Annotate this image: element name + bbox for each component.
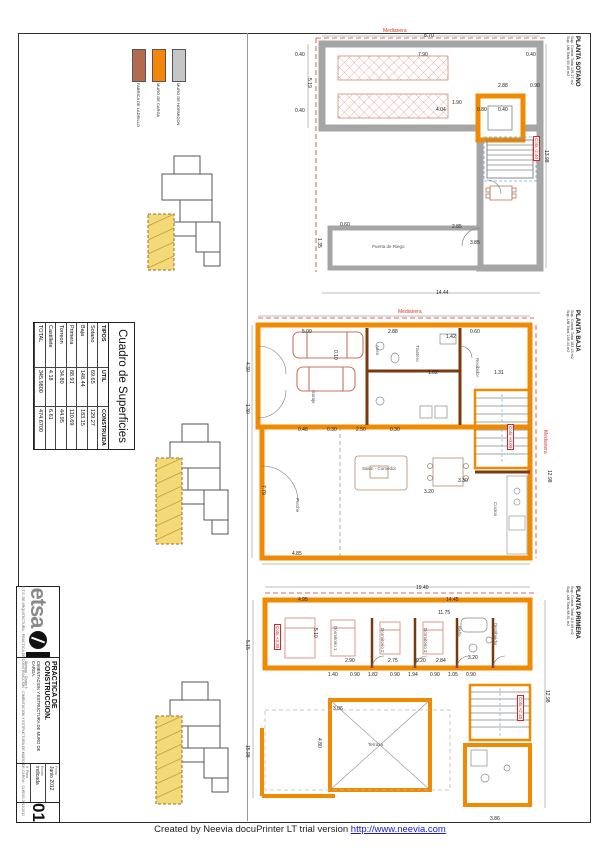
- planta-sotano-drawing: [250, 28, 562, 303]
- room-label: Salon - Comedor: [362, 466, 396, 471]
- surfaces-table-row: Castillete 4.18 6.61: [45, 323, 56, 449]
- cota-label: Cota +2.45: [517, 695, 524, 721]
- room-label: Garaje: [311, 390, 316, 404]
- field-fecha: Fecha Junio 2012: [45, 764, 59, 802]
- surfaces-table-title: Cuadro de Superficies: [108, 323, 134, 449]
- escala-label: Escala: [40, 766, 44, 800]
- dimension-label: 5.15: [244, 640, 250, 650]
- dimension-label: 0.40: [526, 52, 536, 58]
- legend-item-loadwall: MURO DE CARGA: [152, 49, 164, 82]
- etsa-logo-circle-icon: [29, 631, 47, 649]
- field-escala: Escala indicada: [30, 764, 44, 802]
- site-keyplan-3: [148, 678, 243, 820]
- dimension-label: 0.20: [416, 658, 426, 664]
- dimension-label: 12.98: [546, 470, 552, 483]
- dimension-label: 19.40: [416, 585, 429, 591]
- dimension-label: 1.31: [494, 370, 504, 376]
- site-keyplan-1: [140, 152, 235, 287]
- dimension-label: 0.40: [498, 107, 508, 113]
- dimension-label: 0.90: [350, 672, 360, 678]
- legend-item-brick: FABRICA DE LADRILLO: [132, 49, 144, 82]
- plan-title-sotano: PLANTA SOTANO Sup. Constr. Total 129.27 …: [566, 36, 580, 124]
- cell-util: 34.80: [56, 368, 67, 407]
- cota-label: Cota +0.00: [507, 424, 514, 450]
- dimension-label: 2.84: [436, 658, 446, 664]
- dimension-label: 4.30: [244, 362, 250, 372]
- dimension-label: 0.30: [327, 427, 337, 433]
- dimension-label: 3.85: [470, 240, 480, 246]
- etsa-logo-bar-icon: [26, 652, 50, 657]
- cell-construida: 6.61: [45, 407, 56, 449]
- room-label: Trastero: [415, 345, 420, 362]
- room-label: Dormitorio 1: [333, 626, 338, 651]
- planta-baja-drawing: [245, 306, 575, 568]
- dimension-label: 0.48: [298, 427, 308, 433]
- site-keyplan-2: [148, 418, 243, 563]
- dimension-label: 4.80: [316, 738, 322, 748]
- dimension-label: 1.35: [316, 238, 322, 248]
- credits-strip: E.T.S. DE ARQUITECTURA · PRACTICA DE CON…: [18, 586, 28, 821]
- cell-construida: 183.15: [77, 407, 88, 449]
- dimension-label: 1.82: [368, 672, 378, 678]
- elevator-shaft: [478, 96, 523, 140]
- dimension-label: 3.20: [424, 489, 434, 495]
- cell-util: 345.9800: [35, 368, 46, 407]
- dimension-label: 7.90: [418, 52, 428, 58]
- cell-tipo: Baja: [77, 323, 88, 368]
- dimension-label: 2.50: [356, 427, 366, 433]
- escala-value: indicada: [34, 766, 40, 800]
- dimension-label: 5.10: [312, 628, 318, 638]
- dimension-label: 2.75: [388, 658, 398, 664]
- dimension-label: Medianera: [383, 28, 407, 34]
- dimension-label: 14.44: [436, 290, 449, 296]
- project-title: PRACTICA DE CONSTRUCCION.: [43, 661, 57, 760]
- dimension-label: 14.45: [446, 597, 459, 603]
- legend-item-concrete: MURO DE HORMIGON: [172, 49, 184, 82]
- col-tipos: TIPOS: [98, 323, 109, 368]
- cell-construida: 44.95: [56, 407, 67, 449]
- room-label: Cocina: [493, 502, 498, 516]
- dimension-label: 0.90: [530, 83, 540, 89]
- dimension-label: 0.40: [295, 52, 305, 58]
- etsa-logo-text: etsa: [25, 587, 51, 627]
- dimension-label: 1.30: [244, 404, 250, 414]
- baja-exterior-walls: [258, 325, 530, 558]
- room-label: Terraza: [368, 742, 383, 747]
- cell-util: 69.65: [87, 368, 98, 407]
- dimension-label: 4.85: [292, 551, 302, 557]
- legend-label-loadwall: MURO DE CARGA: [156, 83, 161, 117]
- dimension-label: 0.90: [466, 672, 476, 678]
- dimension-label: 12.98: [544, 690, 550, 703]
- room-label: Distribuidor: [493, 623, 498, 646]
- dimension-label: 3.30: [458, 478, 468, 484]
- plan-constr-area: Sup. Constr. Total 129.27 m2: [570, 36, 574, 124]
- dimension-label: 0.80: [477, 107, 487, 113]
- dimension-label: 1.40: [328, 672, 338, 678]
- col-construida: CONSTRUIDA: [98, 407, 109, 449]
- cell-util: 88.91: [66, 368, 77, 407]
- dimension-label: 2.85: [452, 224, 462, 230]
- dimension-label: 15.98: [244, 745, 250, 758]
- cell-tipo: TOTAL: [35, 323, 46, 368]
- dimension-label: 5.19: [306, 78, 312, 88]
- fecha-label: Fecha: [54, 766, 58, 800]
- cell-construida: 474.6700: [35, 407, 46, 449]
- dimension-label: 0.40: [295, 108, 305, 114]
- cell-tipo: Primera: [66, 323, 77, 368]
- surfaces-table-row: Baja 148.44 183.15: [77, 323, 88, 449]
- cell-construida: 129.27: [87, 407, 98, 449]
- dimension-label: 5.00: [302, 329, 312, 335]
- cell-tipo: Castillete: [45, 323, 56, 368]
- dimension-label: 13.98: [543, 150, 549, 163]
- room-label: Baño: [457, 626, 462, 637]
- cota-label: Cota +3.30: [274, 624, 281, 650]
- room-label: Dormitorio 2: [380, 628, 385, 653]
- planta-primera-drawing: [245, 578, 580, 826]
- room-label: Dormitorio 3: [423, 628, 428, 653]
- legend-label-concrete: MURO DE HORMIGON: [176, 83, 181, 125]
- dimension-label: 4.04: [436, 107, 446, 113]
- dimension-label: 0.30: [390, 427, 400, 433]
- dimension-label: 0.60: [340, 222, 350, 228]
- dimension-label: 1.02: [428, 370, 438, 376]
- surfaces-table: Cuadro de Superficies TIPOS UTIL CONSTRU…: [33, 322, 135, 450]
- surfaces-table-row: TOTAL 345.9800 474.6700: [35, 323, 46, 449]
- legend-swatch-concrete: [172, 49, 186, 82]
- cell-util: 148.44: [77, 368, 88, 407]
- drawing-sheet: { "footer": {"created_by": "Created by N…: [0, 0, 600, 848]
- col-util: UTIL: [98, 368, 109, 407]
- dimension-label: 1.42: [446, 334, 456, 340]
- dimension-label: 2.88: [388, 329, 398, 335]
- dimension-label: 0.90: [390, 672, 400, 678]
- cota-label: Cota -2.40: [533, 136, 540, 161]
- surfaces-table-row: Primera 88.91 110.69: [66, 323, 77, 449]
- surfaces-table-body: Sotano 69.65 129.27 Baja 148.44 183.15 P…: [35, 323, 98, 449]
- room-label: Porche: [295, 498, 300, 512]
- dimension-label: 1.05: [448, 672, 458, 678]
- surfaces-table-header: TIPOS UTIL CONSTRUIDA: [98, 323, 109, 449]
- dimension-label: 7.79: [260, 485, 266, 495]
- surfaces-table-row: Sotano 69.65 129.27: [87, 323, 98, 449]
- lower-wall-segments: [262, 728, 335, 796]
- dimension-label: 1.90: [452, 100, 462, 106]
- legend-label-brick: FABRICA DE LADRILLO: [136, 83, 141, 127]
- dimension-label: 8.70: [424, 33, 434, 39]
- room-label: Aseo: [375, 345, 380, 355]
- dimension-label: 3.20: [468, 655, 478, 661]
- dimension-label: 3.06: [333, 706, 343, 712]
- dimension-label: 2.90: [345, 658, 355, 664]
- project-subtitle: CIMENTACION Y ESTRUCTURA DE MURO DE CARG…: [31, 661, 41, 760]
- dimension-label: 2.88: [498, 83, 508, 89]
- surfaces-table-row: Torreon 34.80 44.95: [56, 323, 67, 449]
- dimension-label: 4.95: [298, 597, 308, 603]
- legend-swatch-brick: [132, 49, 146, 82]
- dimension-label: 0.90: [430, 672, 440, 678]
- room-label: Puerta de Riego: [372, 244, 405, 249]
- fecha-value: Junio 2012: [48, 766, 54, 800]
- room-label: Recibidor: [475, 358, 480, 377]
- cell-tipo: Torreon: [56, 323, 67, 368]
- primera-bathroom: [465, 745, 530, 805]
- cell-tipo: Sotano: [87, 323, 98, 368]
- dimension-label: 0.60: [470, 329, 480, 335]
- dimension-label: Medianera: [542, 430, 548, 454]
- plan-title-text: PLANTA SOTANO: [574, 36, 580, 124]
- dimension-label: Medianera: [398, 309, 422, 315]
- cell-construida: 110.69: [66, 407, 77, 449]
- dimension-label: 11.75: [438, 610, 450, 616]
- dimension-label: 0.10: [332, 350, 338, 360]
- cell-util: 4.18: [45, 368, 56, 407]
- dimension-label: 1.94: [408, 672, 418, 678]
- dimension-label: 3.86: [490, 816, 500, 822]
- legend-swatch-loadwall: [152, 49, 166, 82]
